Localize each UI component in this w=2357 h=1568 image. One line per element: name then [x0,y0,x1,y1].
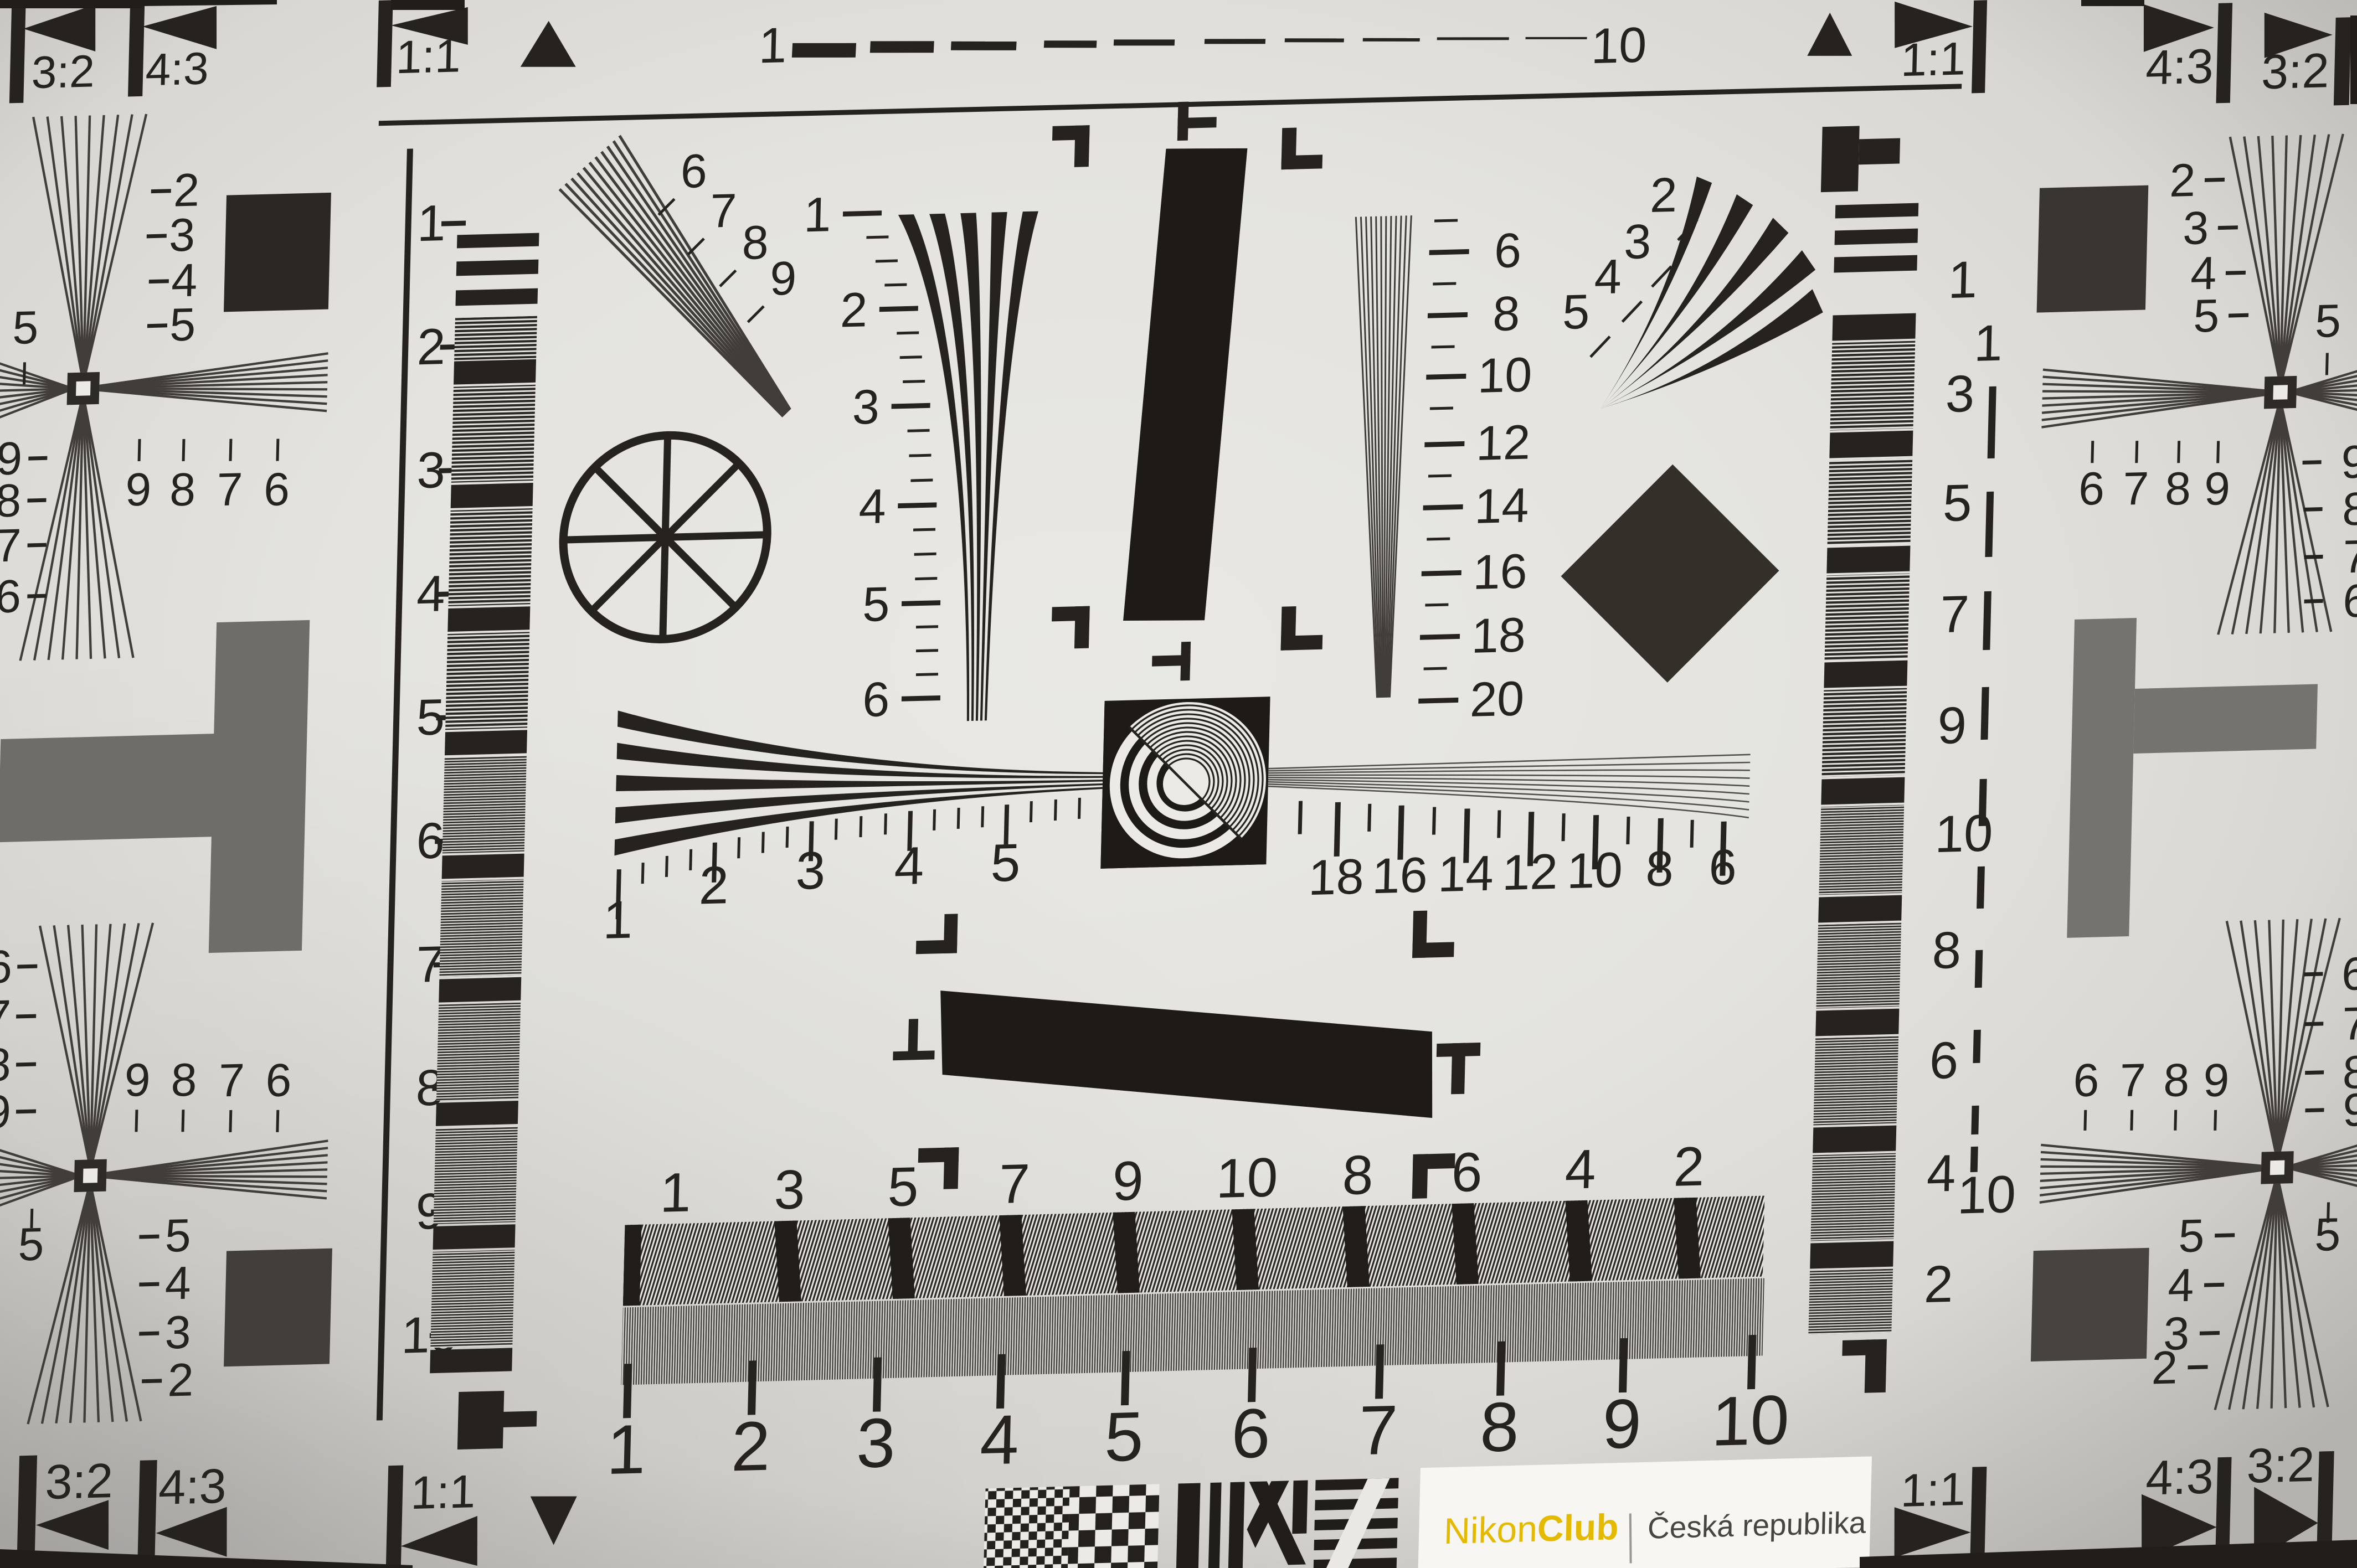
svg-text:12: 12 [1475,414,1531,470]
svg-text:Česká republika: Česká republika [1647,1505,1866,1545]
svg-text:4:3: 4:3 [145,43,209,95]
svg-text:2: 2 [1649,167,1677,223]
svg-text:1:1: 1:1 [1900,32,1966,86]
svg-text:7: 7 [2119,1054,2147,1106]
svg-text:8: 8 [1479,1388,1520,1467]
svg-text:6: 6 [1494,223,1522,278]
svg-text:3:2: 3:2 [2261,43,2330,99]
svg-text:9: 9 [0,1085,12,1138]
svg-text:5: 5 [169,298,196,350]
svg-text:4:3: 4:3 [2145,38,2214,95]
svg-text:9: 9 [2202,1054,2230,1106]
svg-text:8: 8 [742,216,769,270]
svg-text:7: 7 [1939,585,1970,643]
svg-text:18: 18 [1308,849,1364,906]
svg-text:9: 9 [2204,462,2231,515]
svg-text:1: 1 [660,1162,692,1224]
svg-text:9: 9 [125,463,152,515]
svg-text:4:3: 4:3 [158,1458,227,1515]
svg-text:3: 3 [1623,214,1651,269]
svg-text:2: 2 [730,1407,771,1486]
svg-text:9: 9 [1112,1150,1144,1213]
svg-text:9: 9 [769,252,797,306]
svg-text:6: 6 [2078,462,2105,515]
svg-text:6: 6 [680,145,708,198]
svg-text:5: 5 [1104,1397,1144,1476]
svg-text:5: 5 [164,1209,192,1262]
svg-text:6: 6 [0,940,13,993]
svg-text:3: 3 [2182,202,2209,254]
svg-text:4: 4 [1594,249,1622,304]
svg-text:8: 8 [1492,286,1520,341]
svg-text:4: 4 [979,1400,1020,1479]
svg-text:1:1: 1:1 [1900,1463,1966,1517]
svg-text:8: 8 [169,463,196,515]
svg-text:2: 2 [1923,1255,1954,1313]
svg-text:5: 5 [2178,1209,2205,1262]
svg-text:7: 7 [1358,1390,1398,1469]
svg-text:7: 7 [709,184,737,238]
svg-text:10: 10 [1216,1146,1279,1210]
svg-text:3:2: 3:2 [45,1453,114,1509]
svg-text:1: 1 [1973,314,2003,372]
svg-text:6: 6 [862,672,890,727]
svg-text:8: 8 [1932,921,1962,979]
svg-text:10: 10 [1957,1165,2016,1225]
svg-text:4: 4 [1565,1138,1597,1201]
svg-text:2: 2 [2151,1341,2178,1394]
svg-text:3: 3 [774,1158,806,1221]
svg-text:16: 16 [1473,543,1528,599]
svg-text:1: 1 [606,1410,646,1489]
svg-text:1: 1 [803,187,831,242]
svg-text:5: 5 [862,576,890,632]
svg-text:7: 7 [2341,997,2357,1050]
svg-text:NikonClub: NikonClub [1443,1506,1619,1551]
svg-text:9: 9 [1937,696,1967,755]
svg-text:6: 6 [1451,1141,1483,1204]
svg-text:4: 4 [2168,1259,2195,1312]
svg-text:4: 4 [1926,1144,1957,1203]
svg-text:7: 7 [218,1054,245,1106]
svg-text:6: 6 [263,463,290,515]
svg-text:8: 8 [1342,1144,1374,1206]
svg-text:12: 12 [1501,844,1558,901]
svg-text:5: 5 [12,301,39,354]
svg-text:8: 8 [171,1054,198,1106]
svg-text:3: 3 [168,209,195,261]
svg-text:10: 10 [1566,843,1623,900]
svg-text:8: 8 [2163,1054,2190,1106]
svg-text:14: 14 [1474,477,1530,533]
svg-text:7: 7 [2122,462,2149,515]
svg-text:7: 7 [999,1153,1031,1215]
svg-text:10: 10 [1934,803,1994,863]
svg-text:3: 3 [1945,364,1975,423]
svg-text:1:1: 1:1 [410,1465,476,1519]
svg-text:8: 8 [2341,482,2357,535]
svg-text:3: 3 [164,1306,192,1359]
svg-text:8: 8 [0,1038,12,1091]
svg-text:1: 1 [1948,250,1978,309]
svg-text:5: 5 [887,1156,919,1218]
svg-text:6: 6 [0,570,22,622]
svg-text:6: 6 [2341,947,2357,1000]
svg-text:2: 2 [1673,1135,1705,1198]
svg-text:6: 6 [1708,839,1737,895]
svg-text:5: 5 [1562,284,1590,339]
svg-text:16: 16 [1371,848,1428,905]
svg-text:2: 2 [167,1353,194,1406]
svg-text:18: 18 [1471,607,1526,663]
svg-text:7: 7 [0,519,22,571]
svg-text:6: 6 [1231,1394,1271,1473]
svg-text:1: 1 [758,18,787,74]
svg-text:9: 9 [2342,1084,2357,1136]
svg-text:3: 3 [852,379,880,435]
svg-text:8: 8 [1645,841,1674,897]
svg-text:5: 5 [2193,290,2220,342]
svg-text:20: 20 [1469,670,1525,726]
svg-text:5: 5 [1942,473,1973,532]
svg-text:4: 4 [164,1257,192,1309]
svg-text:3: 3 [856,1404,896,1483]
svg-text:3:2: 3:2 [31,46,95,98]
svg-text:2: 2 [2169,154,2196,207]
svg-text:6: 6 [265,1054,292,1106]
svg-text:9: 9 [2340,435,2357,488]
svg-text:4:3: 4:3 [2145,1449,2214,1505]
svg-text:6: 6 [2073,1054,2100,1106]
svg-text:5: 5 [2314,295,2341,347]
svg-text:3:2: 3:2 [2246,1437,2315,1493]
svg-text:10: 10 [1477,347,1532,403]
svg-text:4: 4 [858,478,887,534]
svg-text:6: 6 [1929,1031,1959,1090]
svg-text:10: 10 [1711,1380,1790,1461]
svg-text:7: 7 [0,990,12,1043]
svg-text:14: 14 [1437,846,1494,903]
svg-text:6: 6 [2342,574,2357,627]
svg-text:10: 10 [1591,18,1647,75]
svg-text:8: 8 [2164,462,2191,515]
svg-text:9: 9 [124,1054,151,1106]
svg-text:1:1: 1:1 [395,29,461,83]
svg-text:9: 9 [1602,1384,1642,1463]
svg-text:7: 7 [216,463,243,515]
svg-text:2: 2 [840,282,868,337]
